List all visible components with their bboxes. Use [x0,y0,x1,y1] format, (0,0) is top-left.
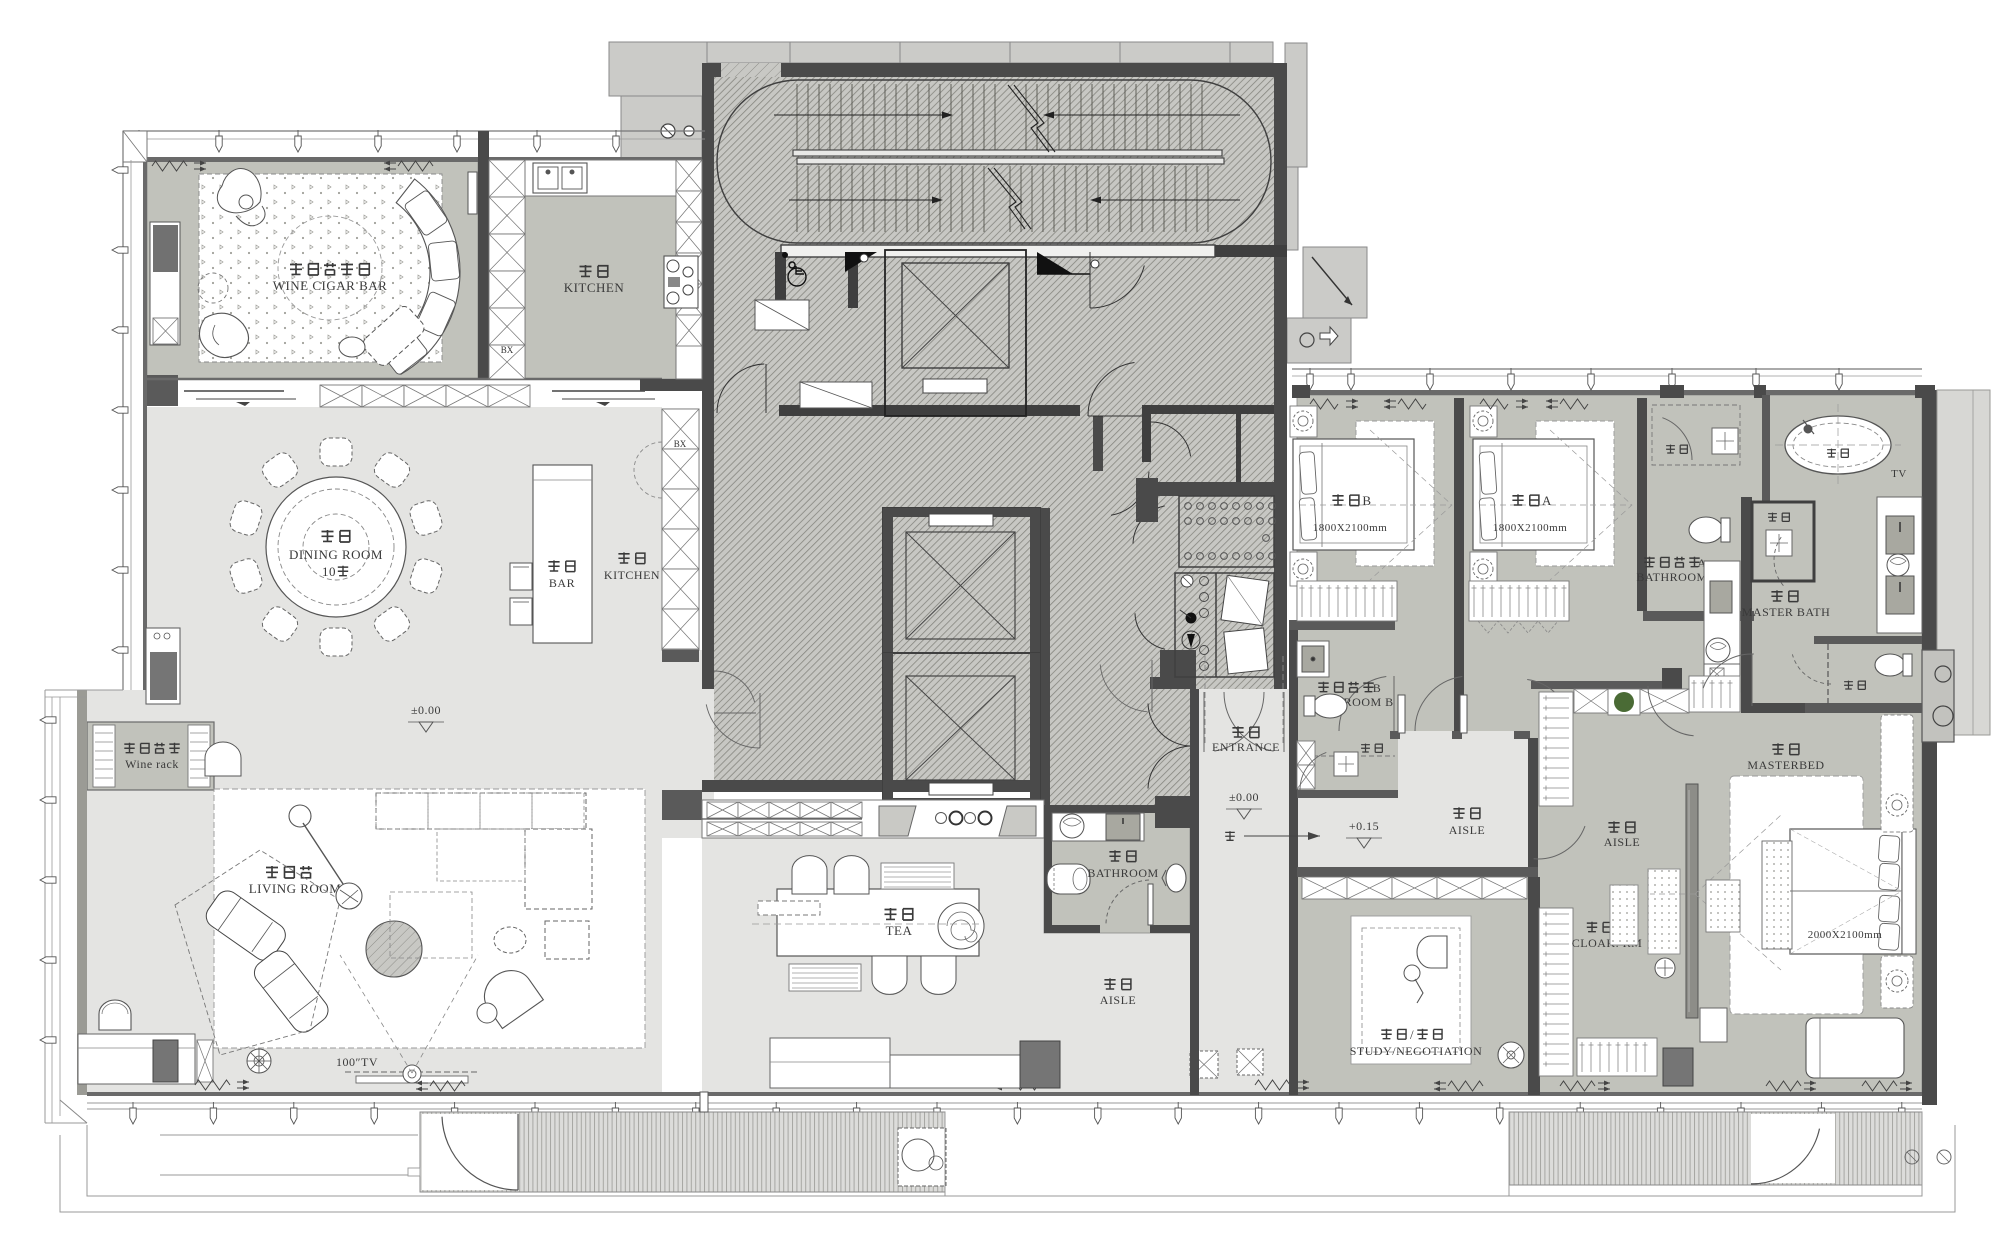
svg-text:1800X2100mm: 1800X2100mm [1313,522,1388,534]
svg-text:1800X2100mm: 1800X2100mm [1493,522,1568,534]
svg-text:TEA: TEA [886,923,913,938]
svg-text:DINING ROOM: DINING ROOM [289,547,383,562]
svg-text:B: B [1362,493,1371,508]
svg-text:100″TV: 100″TV [336,1055,378,1069]
svg-text:AISLE: AISLE [1100,993,1137,1007]
svg-text:±0.00: ±0.00 [1229,790,1259,804]
svg-text:A: A [1542,493,1552,508]
svg-text:/: / [1410,1027,1414,1042]
svg-text:ENTRANCE: ENTRANCE [1212,740,1280,754]
svg-text:AISLE: AISLE [1449,823,1486,837]
svg-text:Wine rack: Wine rack [125,757,179,771]
svg-text:MASTERBED: MASTERBED [1747,758,1824,772]
svg-text:AISLE: AISLE [1604,835,1641,849]
svg-text:10: 10 [322,564,336,579]
svg-text:BATHROOM: BATHROOM [1087,866,1158,880]
svg-text:MASTER BATH: MASTER BATH [1742,605,1831,619]
svg-text:+0.15: +0.15 [1349,819,1379,833]
svg-text:BX: BX [674,439,687,449]
svg-text:STUDY/NEGOTIATION: STUDY/NEGOTIATION [1350,1044,1482,1058]
svg-text:BX: BX [501,345,514,355]
svg-text:TV: TV [1891,468,1907,480]
svg-text:BAR: BAR [549,576,575,590]
svg-text:KITCHEN: KITCHEN [564,280,625,295]
svg-text:B: B [1373,681,1382,695]
svg-text:WINE CIGAR BAR: WINE CIGAR BAR [273,278,388,293]
svg-text:±0.00: ±0.00 [411,703,441,717]
svg-text:2000X2100mm: 2000X2100mm [1808,929,1883,941]
svg-text:LIVING ROOM: LIVING ROOM [249,881,342,896]
svg-text:KITCHEN: KITCHEN [604,568,660,582]
